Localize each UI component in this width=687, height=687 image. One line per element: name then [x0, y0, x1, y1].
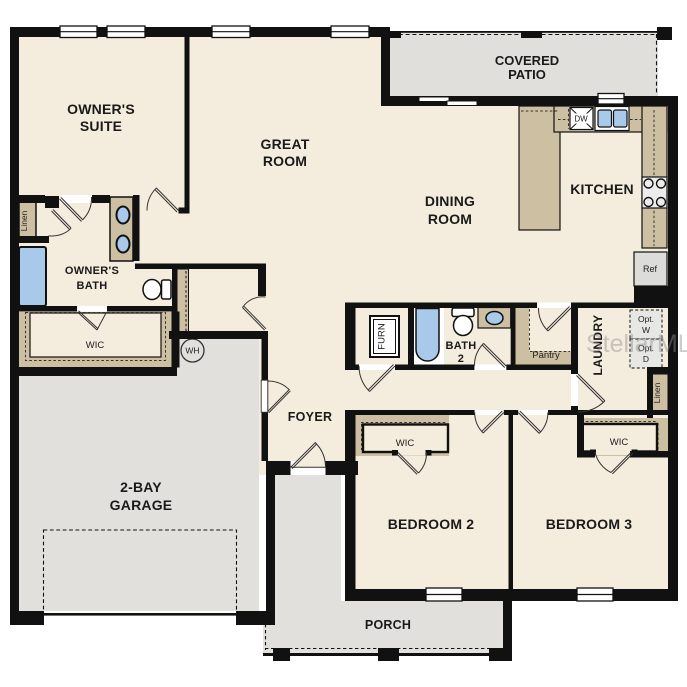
- svg-text:WIC: WIC: [86, 340, 105, 351]
- svg-text:BATH: BATH: [77, 280, 108, 292]
- svg-text:Ref: Ref: [643, 264, 658, 274]
- svg-text:2: 2: [458, 353, 464, 365]
- svg-text:KITCHEN: KITCHEN: [570, 181, 634, 197]
- svg-text:DINING: DINING: [425, 193, 475, 209]
- svg-text:Pantry: Pantry: [532, 350, 560, 361]
- svg-text:FURN: FURN: [377, 323, 388, 350]
- svg-text:PATIO: PATIO: [508, 67, 546, 82]
- svg-text:Linen: Linen: [19, 210, 29, 231]
- svg-text:StellarMLS: StellarMLS: [586, 330, 687, 358]
- svg-text:ROOM: ROOM: [428, 211, 472, 227]
- svg-text:OWNER'S: OWNER'S: [67, 101, 135, 117]
- svg-text:BEDROOM 3: BEDROOM 3: [546, 516, 633, 532]
- svg-text:Linen: Linen: [652, 382, 662, 403]
- svg-text:PORCH: PORCH: [365, 618, 411, 632]
- svg-text:WIC: WIC: [610, 437, 629, 448]
- svg-text:GARAGE: GARAGE: [110, 497, 173, 513]
- svg-text:COVERED: COVERED: [495, 53, 559, 68]
- svg-text:FOYER: FOYER: [288, 410, 333, 424]
- svg-text:DW: DW: [574, 115, 588, 124]
- svg-text:SUITE: SUITE: [80, 118, 122, 134]
- svg-text:2-BAY: 2-BAY: [120, 479, 162, 495]
- svg-text:ROOM: ROOM: [263, 153, 307, 169]
- svg-text:WIC: WIC: [396, 438, 415, 449]
- svg-text:BEDROOM 2: BEDROOM 2: [388, 516, 475, 532]
- svg-text:GREAT: GREAT: [261, 136, 310, 152]
- svg-text:WH: WH: [185, 346, 199, 356]
- svg-text:BATH: BATH: [446, 340, 477, 352]
- svg-text:Opt.: Opt.: [638, 314, 654, 324]
- svg-text:OWNER'S: OWNER'S: [65, 265, 119, 277]
